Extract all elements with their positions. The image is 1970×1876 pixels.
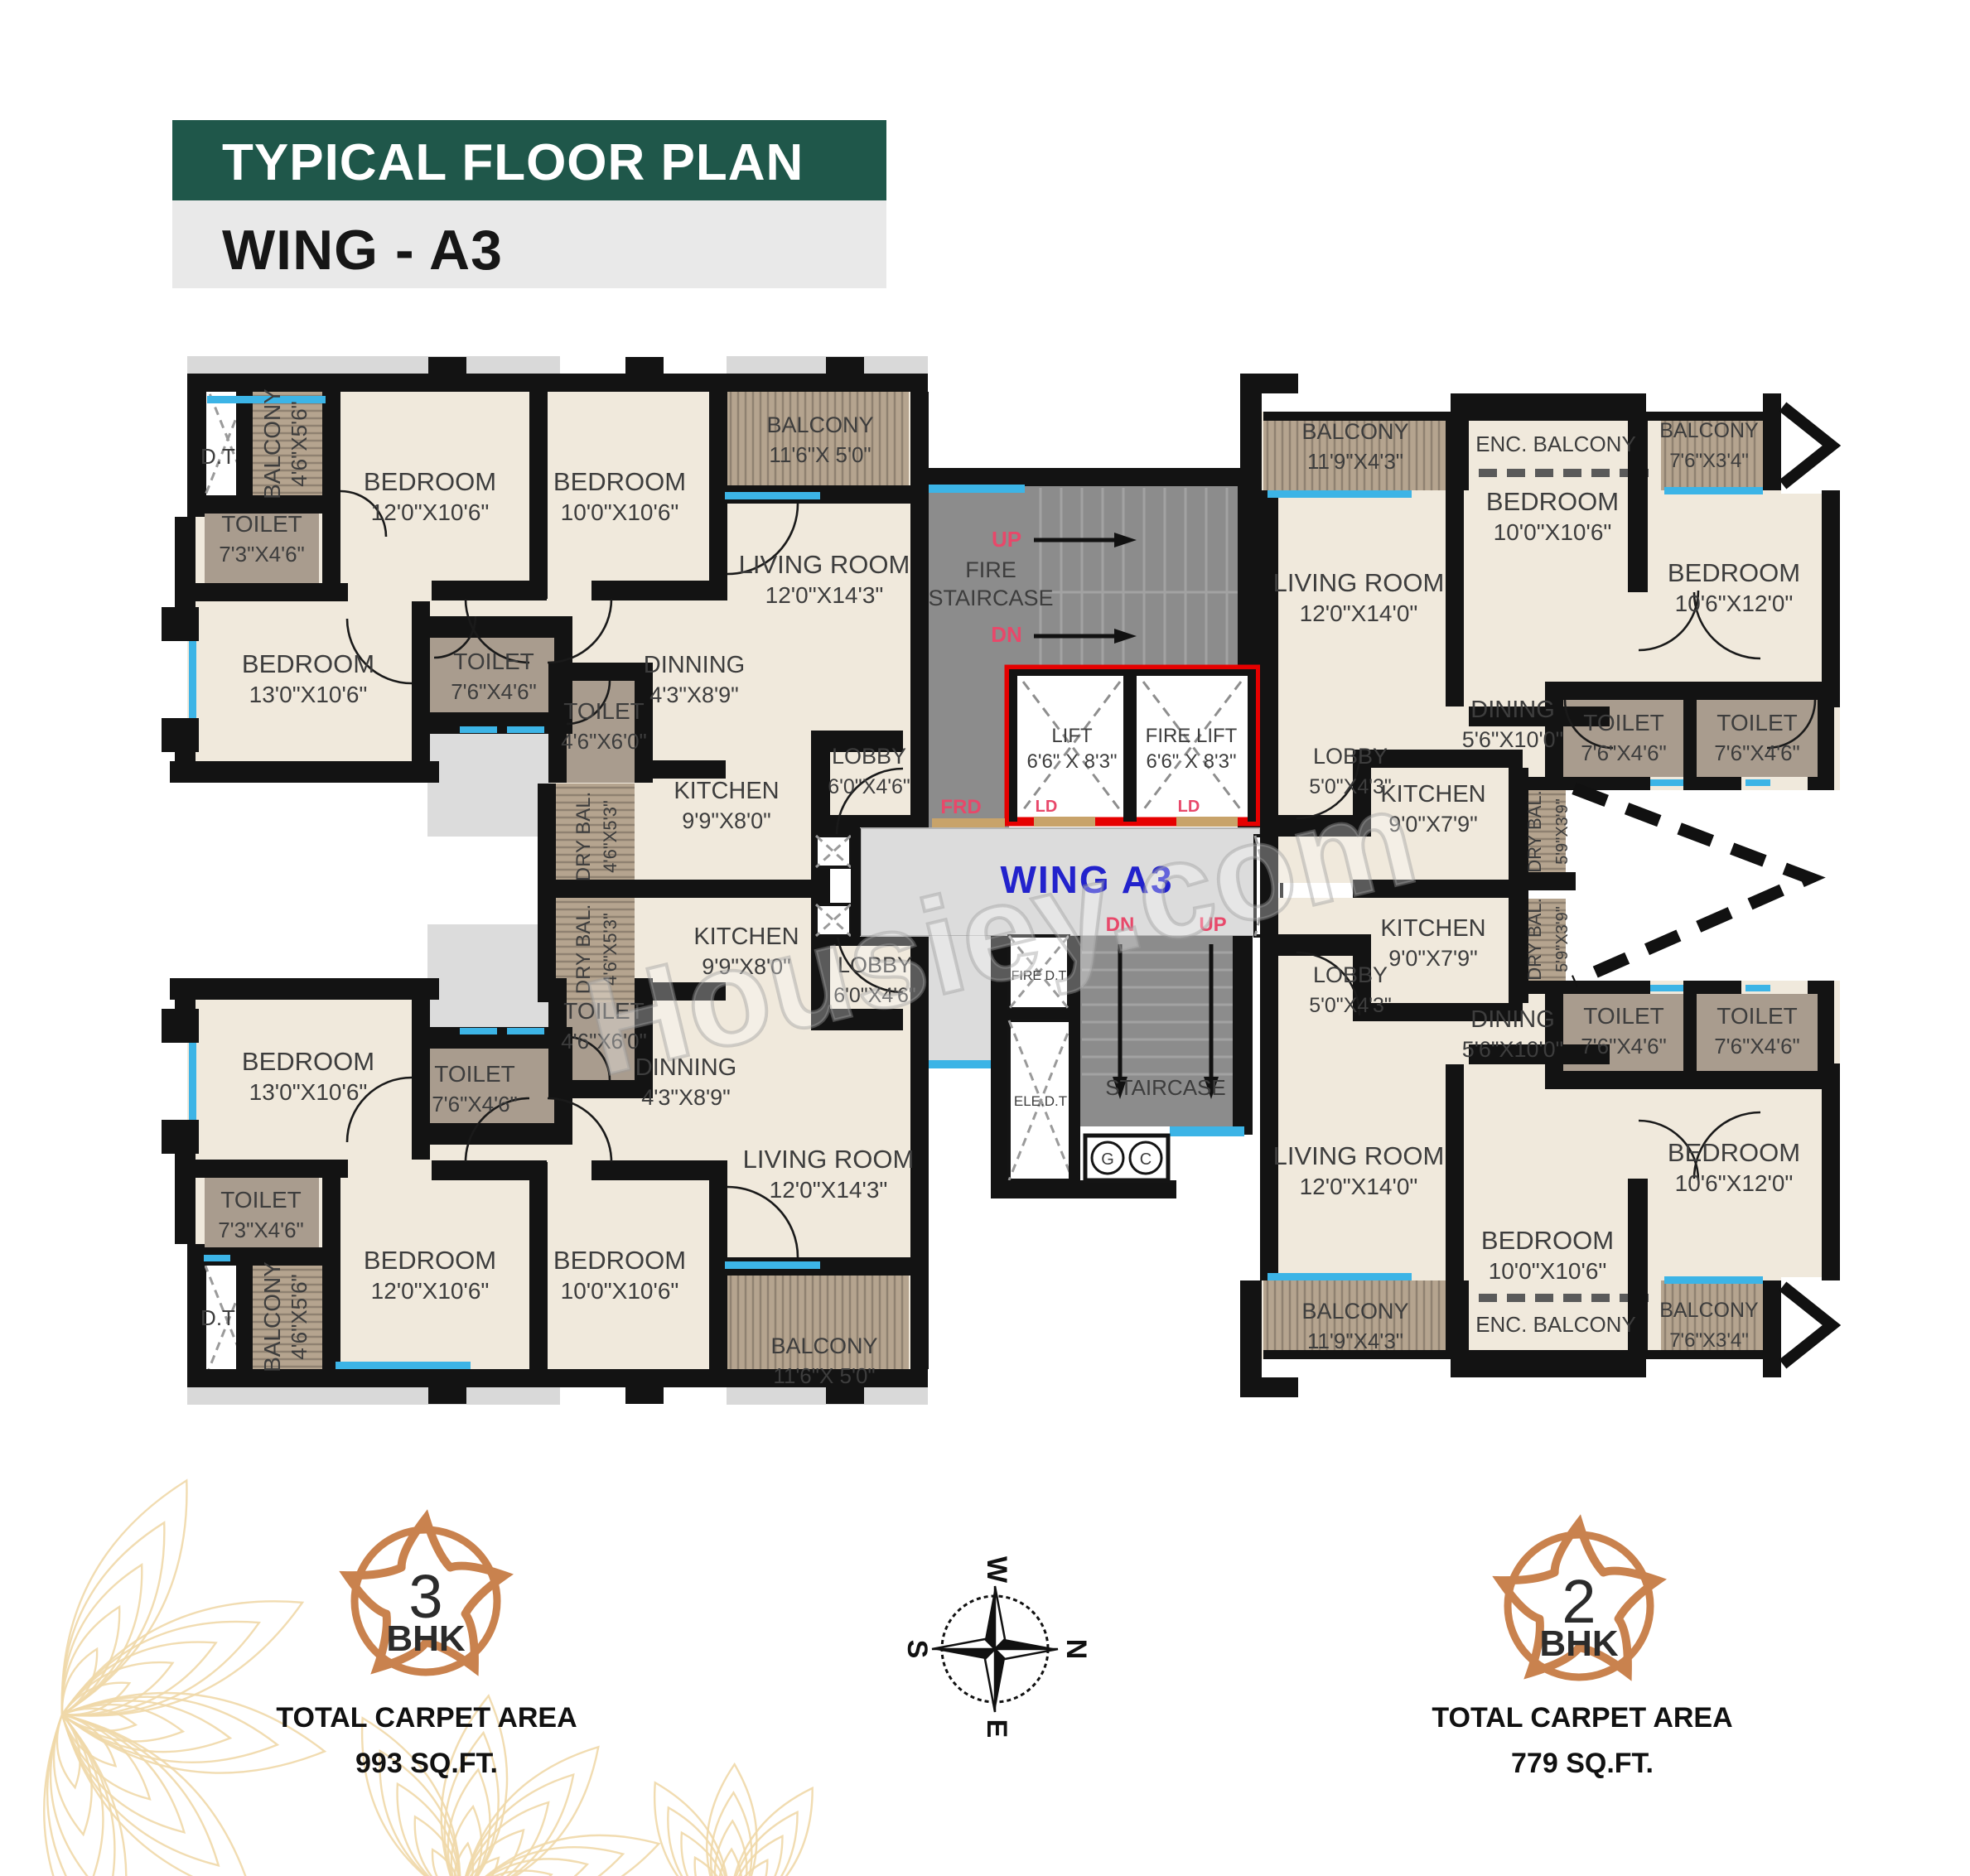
svg-text:ENC. BALCONY: ENC. BALCONY	[1475, 1312, 1636, 1337]
svg-text:DINNING: DINNING	[644, 652, 745, 678]
svg-text:5'9"X3'9": 5'9"X3'9"	[1553, 798, 1572, 865]
svg-text:6'0"X4'6": 6'0"X4'6"	[828, 775, 910, 798]
svg-text:ENC. BALCONY: ENC. BALCONY	[1475, 432, 1636, 456]
svg-text:7'3"X4'6": 7'3"X4'6"	[218, 1218, 304, 1242]
svg-text:BALCONY: BALCONY	[1301, 1299, 1408, 1324]
svg-text:10'6"X12'0": 10'6"X12'0"	[1675, 591, 1794, 616]
svg-text:6'6" X 8'3": 6'6" X 8'3"	[1027, 750, 1118, 773]
svg-text:LIVING ROOM: LIVING ROOM	[1273, 568, 1445, 597]
svg-text:9'0"X7'9": 9'0"X7'9"	[1388, 946, 1478, 971]
svg-text:BEDROOM: BEDROOM	[364, 467, 496, 496]
svg-text:BALCONY: BALCONY	[259, 388, 285, 499]
svg-text:DINING: DINING	[1470, 697, 1555, 723]
svg-text:7'6"X3'4": 7'6"X3'4"	[1669, 1329, 1749, 1352]
svg-text:BEDROOM: BEDROOM	[364, 1246, 496, 1275]
svg-text:TYPICAL FLOOR PLAN: TYPICAL FLOOR PLAN	[222, 134, 804, 191]
svg-text:4'6"X6'0": 4'6"X6'0"	[561, 729, 647, 754]
svg-text:10'6"X12'0": 10'6"X12'0"	[1675, 1170, 1794, 1196]
svg-text:TOILET: TOILET	[220, 1187, 302, 1213]
svg-text:G: G	[1101, 1150, 1114, 1169]
svg-text:BHK: BHK	[1539, 1623, 1619, 1664]
svg-text:12'0"X10'6": 12'0"X10'6"	[371, 499, 490, 525]
svg-text:5'6"X10'0": 5'6"X10'0"	[1462, 1037, 1564, 1062]
svg-text:5'9"X3'9": 5'9"X3'9"	[1553, 906, 1572, 972]
svg-text:BALCONY: BALCONY	[766, 412, 873, 437]
svg-text:BALCONY: BALCONY	[259, 1261, 285, 1372]
svg-text:TOTAL CARPET AREA: TOTAL CARPET AREA	[1432, 1702, 1732, 1734]
svg-text:7'6"X4'6": 7'6"X4'6"	[432, 1092, 518, 1116]
svg-text:BEDROOM: BEDROOM	[1668, 1138, 1800, 1167]
svg-text:4'6"X5'3": 4'6"X5'3"	[600, 800, 620, 873]
svg-text:4'6"X5'6": 4'6"X5'6"	[287, 1274, 311, 1360]
svg-text:BEDROOM: BEDROOM	[242, 649, 374, 678]
svg-text:11'9"X4'3": 11'9"X4'3"	[1307, 1329, 1403, 1353]
svg-text:TOILET: TOILET	[221, 511, 302, 537]
svg-text:11'6"X 5'0": 11'6"X 5'0"	[773, 1363, 875, 1388]
svg-text:DRY BAL.: DRY BAL.	[572, 792, 595, 882]
svg-text:DN: DN	[991, 622, 1022, 647]
svg-text:6'6" X 8'3": 6'6" X 8'3"	[1147, 750, 1237, 773]
svg-text:7'6"X4'6": 7'6"X4'6"	[1714, 740, 1800, 765]
svg-text:UP: UP	[992, 527, 1021, 552]
svg-text:12'0"X14'0": 12'0"X14'0"	[1300, 1174, 1418, 1199]
svg-text:TOILET: TOILET	[563, 698, 645, 724]
svg-text:S: S	[901, 1640, 933, 1659]
svg-text:WING - A3: WING - A3	[222, 219, 503, 282]
svg-text:LD: LD	[1036, 798, 1058, 816]
svg-text:STAIRCASE: STAIRCASE	[1105, 1075, 1225, 1100]
svg-text:LOBBY: LOBBY	[1313, 962, 1388, 987]
svg-text:DINING: DINING	[1470, 1006, 1555, 1033]
svg-text:7'6"X4'6": 7'6"X4'6"	[1581, 1034, 1667, 1059]
svg-text:7'6"X4'6": 7'6"X4'6"	[1714, 1034, 1800, 1059]
svg-text:7'6"X4'6": 7'6"X4'6"	[451, 679, 537, 704]
svg-text:FIRE: FIRE	[965, 557, 1016, 582]
svg-text:TOILET: TOILET	[1583, 1003, 1664, 1029]
svg-text:13'0"X10'6": 13'0"X10'6"	[249, 1079, 368, 1105]
svg-text:BALCONY: BALCONY	[1659, 1299, 1759, 1322]
svg-text:TOILET: TOILET	[434, 1061, 515, 1087]
svg-text:DRY BAL.: DRY BAL.	[1524, 790, 1545, 872]
svg-text:BEDROOM: BEDROOM	[1486, 487, 1619, 516]
svg-text:TOILET: TOILET	[453, 649, 534, 674]
svg-text:LIVING ROOM: LIVING ROOM	[739, 550, 910, 579]
svg-text:7'6"X4'6": 7'6"X4'6"	[1581, 740, 1667, 765]
svg-text:10'0"X10'6": 10'0"X10'6"	[561, 499, 679, 525]
svg-text:BEDROOM: BEDROOM	[1481, 1226, 1614, 1255]
svg-text:D.T: D.T	[200, 1305, 235, 1330]
svg-text:5'0"X4'3": 5'0"X4'3"	[1309, 994, 1392, 1017]
svg-text:BALCONY: BALCONY	[1659, 419, 1759, 442]
svg-text:10'0"X10'6": 10'0"X10'6"	[1494, 519, 1612, 545]
svg-text:TOILET: TOILET	[1583, 710, 1664, 735]
svg-text:12'0"X14'3": 12'0"X14'3"	[770, 1177, 888, 1203]
svg-text:D.T: D.T	[200, 444, 235, 469]
svg-text:779 SQ.FT.: 779 SQ.FT.	[1511, 1748, 1654, 1779]
svg-text:E: E	[981, 1719, 1012, 1739]
svg-text:4'3"X8'9": 4'3"X8'9"	[649, 682, 739, 707]
svg-text:LIVING ROOM: LIVING ROOM	[1273, 1141, 1445, 1170]
svg-text:10'0"X10'6": 10'0"X10'6"	[1489, 1258, 1607, 1284]
svg-text:BEDROOM: BEDROOM	[242, 1047, 374, 1076]
svg-text:12'0"X10'6": 12'0"X10'6"	[371, 1278, 490, 1304]
svg-text:LOBBY: LOBBY	[832, 744, 906, 769]
svg-text:KITCHEN: KITCHEN	[674, 778, 779, 804]
svg-text:LIVING ROOM: LIVING ROOM	[743, 1145, 915, 1174]
svg-text:FRD: FRD	[940, 796, 981, 818]
svg-text:TOILET: TOILET	[1717, 1003, 1798, 1029]
svg-text:7'6"X3'4": 7'6"X3'4"	[1669, 450, 1749, 472]
svg-text:LIFT: LIFT	[1051, 725, 1093, 747]
svg-text:BALCONY: BALCONY	[1301, 419, 1408, 444]
svg-text:9'9"X8'0": 9'9"X8'0"	[682, 808, 771, 833]
svg-text:BHK: BHK	[386, 1618, 466, 1659]
svg-text:C: C	[1140, 1150, 1152, 1169]
svg-text:BEDROOM: BEDROOM	[553, 1246, 686, 1275]
svg-text:ELE.D.T: ELE.D.T	[1014, 1093, 1067, 1109]
svg-text:5'6"X10'0": 5'6"X10'0"	[1462, 727, 1564, 752]
svg-text:N: N	[1060, 1639, 1092, 1660]
svg-text:TOTAL CARPET AREA: TOTAL CARPET AREA	[276, 1702, 577, 1734]
svg-text:12'0"X14'0": 12'0"X14'0"	[1300, 600, 1418, 626]
svg-text:DRY BAL.: DRY BAL.	[1524, 898, 1545, 980]
svg-text:993 SQ.FT.: 993 SQ.FT.	[355, 1748, 498, 1779]
svg-text:13'0"X10'6": 13'0"X10'6"	[249, 682, 368, 707]
svg-text:10'0"X10'6": 10'0"X10'6"	[561, 1278, 679, 1304]
svg-text:11'9"X4'3": 11'9"X4'3"	[1307, 449, 1403, 474]
svg-text:KITCHEN: KITCHEN	[1380, 915, 1485, 942]
svg-text:STAIRCASE: STAIRCASE	[928, 586, 1053, 610]
svg-text:BEDROOM: BEDROOM	[1668, 558, 1800, 587]
svg-text:TOILET: TOILET	[1717, 710, 1798, 735]
svg-text:FIRE LIFT: FIRE LIFT	[1146, 725, 1238, 747]
svg-text:BALCONY: BALCONY	[770, 1333, 877, 1358]
svg-text:12'0"X14'3": 12'0"X14'3"	[765, 582, 884, 608]
svg-text:4'6"X5'6": 4'6"X5'6"	[287, 401, 311, 487]
svg-text:7'3"X4'6": 7'3"X4'6"	[219, 542, 305, 567]
svg-text:BEDROOM: BEDROOM	[553, 467, 686, 496]
svg-text:W: W	[981, 1556, 1012, 1584]
svg-text:11'6"X 5'0": 11'6"X 5'0"	[769, 442, 871, 467]
